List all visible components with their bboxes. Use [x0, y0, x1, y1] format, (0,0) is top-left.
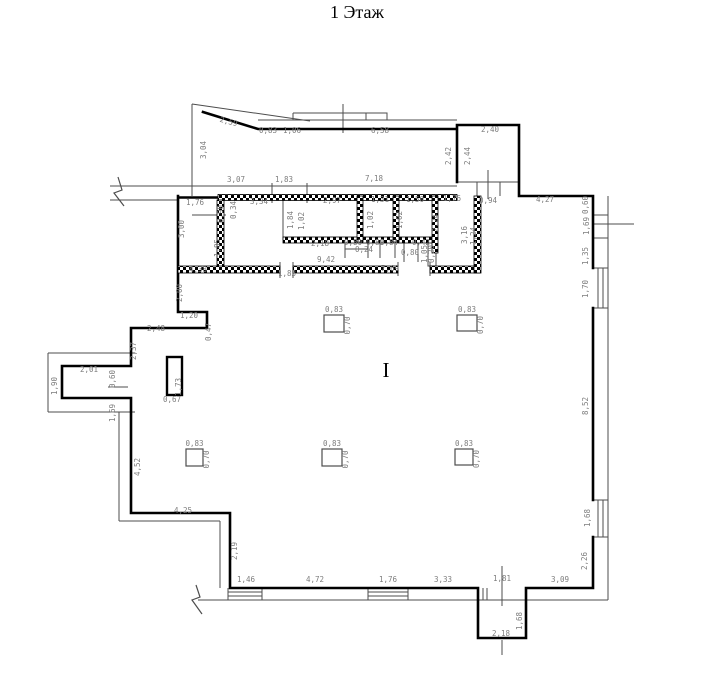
dimension-label: 1,69 [108, 404, 117, 422]
window-bottom-mid [368, 588, 408, 600]
dimension-label: 0,90 [216, 204, 225, 223]
column-marker [324, 315, 344, 332]
thin-lines [48, 104, 634, 655]
dimension-label: 0,47 [204, 323, 213, 341]
dimension-label: 3,16 [460, 225, 469, 244]
dimension-label: 3,00 [177, 219, 186, 238]
dimension-label: 2,48 [147, 324, 166, 333]
dimension-label: 2,42 [444, 147, 453, 165]
dimension-label: 3,09 [551, 575, 569, 584]
pillar-height-label: 1,73 [174, 378, 183, 396]
dimension-label: 2,97 [323, 196, 341, 205]
dimension-label: 1,90 [50, 376, 59, 395]
dimension-label: 0,34 [229, 200, 238, 219]
dimension-label: 1,84 [286, 210, 295, 229]
outer-wall [62, 112, 593, 638]
dimension-label: 2,19 [230, 542, 239, 560]
dimension-label: 4,72 [306, 575, 324, 584]
dimension-label: 1,50 [406, 195, 425, 204]
dimension-label: 1,68 [515, 611, 524, 630]
dimension-label: 1,68 [583, 508, 592, 527]
window-right-upper [593, 268, 608, 308]
dimension-label: 1,06 [283, 126, 302, 135]
dimension-label: 1,83 [278, 269, 296, 278]
dimension-label: 1,46 [237, 575, 256, 584]
dimension-label: 1,02 [297, 212, 306, 230]
break-symbol-top-left [114, 177, 124, 206]
hatched-partition-1 [357, 196, 363, 242]
dimension-label: 7,18 [365, 174, 384, 183]
dimension-label: 0,60 [581, 195, 590, 214]
column-height-label: 0,70 [476, 315, 485, 334]
column-height-label: 0,70 [343, 316, 352, 335]
window-bottom-left [228, 588, 262, 600]
dimension-label: 1,02 [395, 211, 404, 229]
dimension-label: 2,18 [311, 239, 330, 248]
break-symbols [114, 177, 202, 614]
dimension-label: 1,76 [186, 198, 205, 207]
column-marker [322, 449, 342, 466]
dimension-label: 4,25 [174, 506, 192, 515]
dimension-label: 0,83 [259, 126, 277, 135]
dimension-label: 1,69 [582, 217, 591, 235]
dimension-label: 2,24 [431, 213, 440, 232]
column-height-label: 0,70 [202, 450, 211, 469]
dimension-label: 2,00 [175, 283, 184, 302]
dimension-label: 2,37 [129, 342, 138, 360]
dimension-label: 1,76 [379, 575, 398, 584]
floor-plan: 0,830,700,830,700,830,700,830,700,830,70… [0, 0, 714, 700]
box-door [457, 170, 519, 199]
dimension-label: 4,38 [189, 265, 208, 274]
dimension-label: 3,04 [199, 140, 208, 159]
column-marker [455, 449, 473, 465]
dimension-label: 1,70 [581, 279, 590, 298]
dimension-label: 1,76 [443, 194, 462, 203]
dimension-label: 2,44 [463, 146, 472, 165]
dimension-label: 0,60 [108, 369, 117, 388]
column-height-label: 0,70 [341, 450, 350, 469]
dimension-label: 8,52 [581, 397, 590, 415]
dimension-label: 0,80 [401, 248, 420, 257]
dimension-label: 2,01 [80, 365, 98, 374]
column-width-label: 0,83 [323, 439, 341, 448]
dimension-label: 6,58 [371, 126, 390, 135]
dimension-label: 1,02 [366, 211, 375, 229]
dimension-label: 2,59 [219, 115, 239, 128]
window-right-lower [593, 500, 608, 537]
column-width-label: 0,83 [455, 439, 473, 448]
dimension-label: 2,26 [580, 551, 589, 570]
dimension-label: 2,40 [481, 125, 500, 134]
dimension-label: 0,20 [427, 244, 436, 263]
dimension-label: 1,81 [493, 574, 511, 583]
column-marker [457, 315, 477, 331]
dimension-label: 0,94 [479, 196, 498, 205]
dimension-labels: 2,593,040,831,066,582,402,422,443,071,83… [50, 115, 592, 638]
dimension-label: 1,83 [275, 175, 293, 184]
dimension-label: 3,07 [227, 175, 245, 184]
hatched-band-c [430, 266, 480, 273]
dimension-label: 1,20 [180, 311, 199, 320]
i-beam-column-symbol: I [383, 358, 390, 382]
walls [62, 112, 593, 638]
column-width-label: 0,83 [185, 439, 203, 448]
column-width-label: 0,83 [458, 305, 476, 314]
dimension-label: 4,52 [133, 458, 142, 476]
column-height-label: 0,70 [472, 449, 481, 468]
dimension-label: 4,27 [536, 195, 554, 204]
dimension-label: 9,42 [317, 255, 335, 264]
dimension-label: 1,35 [581, 247, 590, 265]
dimension-label: 3,34 [250, 197, 269, 206]
dimension-label: 1,85 [213, 239, 222, 257]
column-width-label: 0,83 [325, 305, 343, 314]
right-outer-line [593, 196, 634, 600]
window-symbols [228, 268, 608, 600]
dimension-label: 0,24 [355, 245, 374, 254]
dimension-label: 1,31 [371, 195, 389, 204]
dimension-label: 7,69 [381, 264, 399, 273]
column-markers: 0,830,700,830,700,830,700,830,700,830,70 [185, 305, 485, 469]
dimension-label: 1,24 [469, 226, 478, 245]
column-marker [186, 449, 203, 466]
dimension-label: 3,33 [434, 575, 452, 584]
dimension-label: 2,18 [492, 629, 511, 638]
dimension-label: 0,84 [380, 238, 399, 247]
